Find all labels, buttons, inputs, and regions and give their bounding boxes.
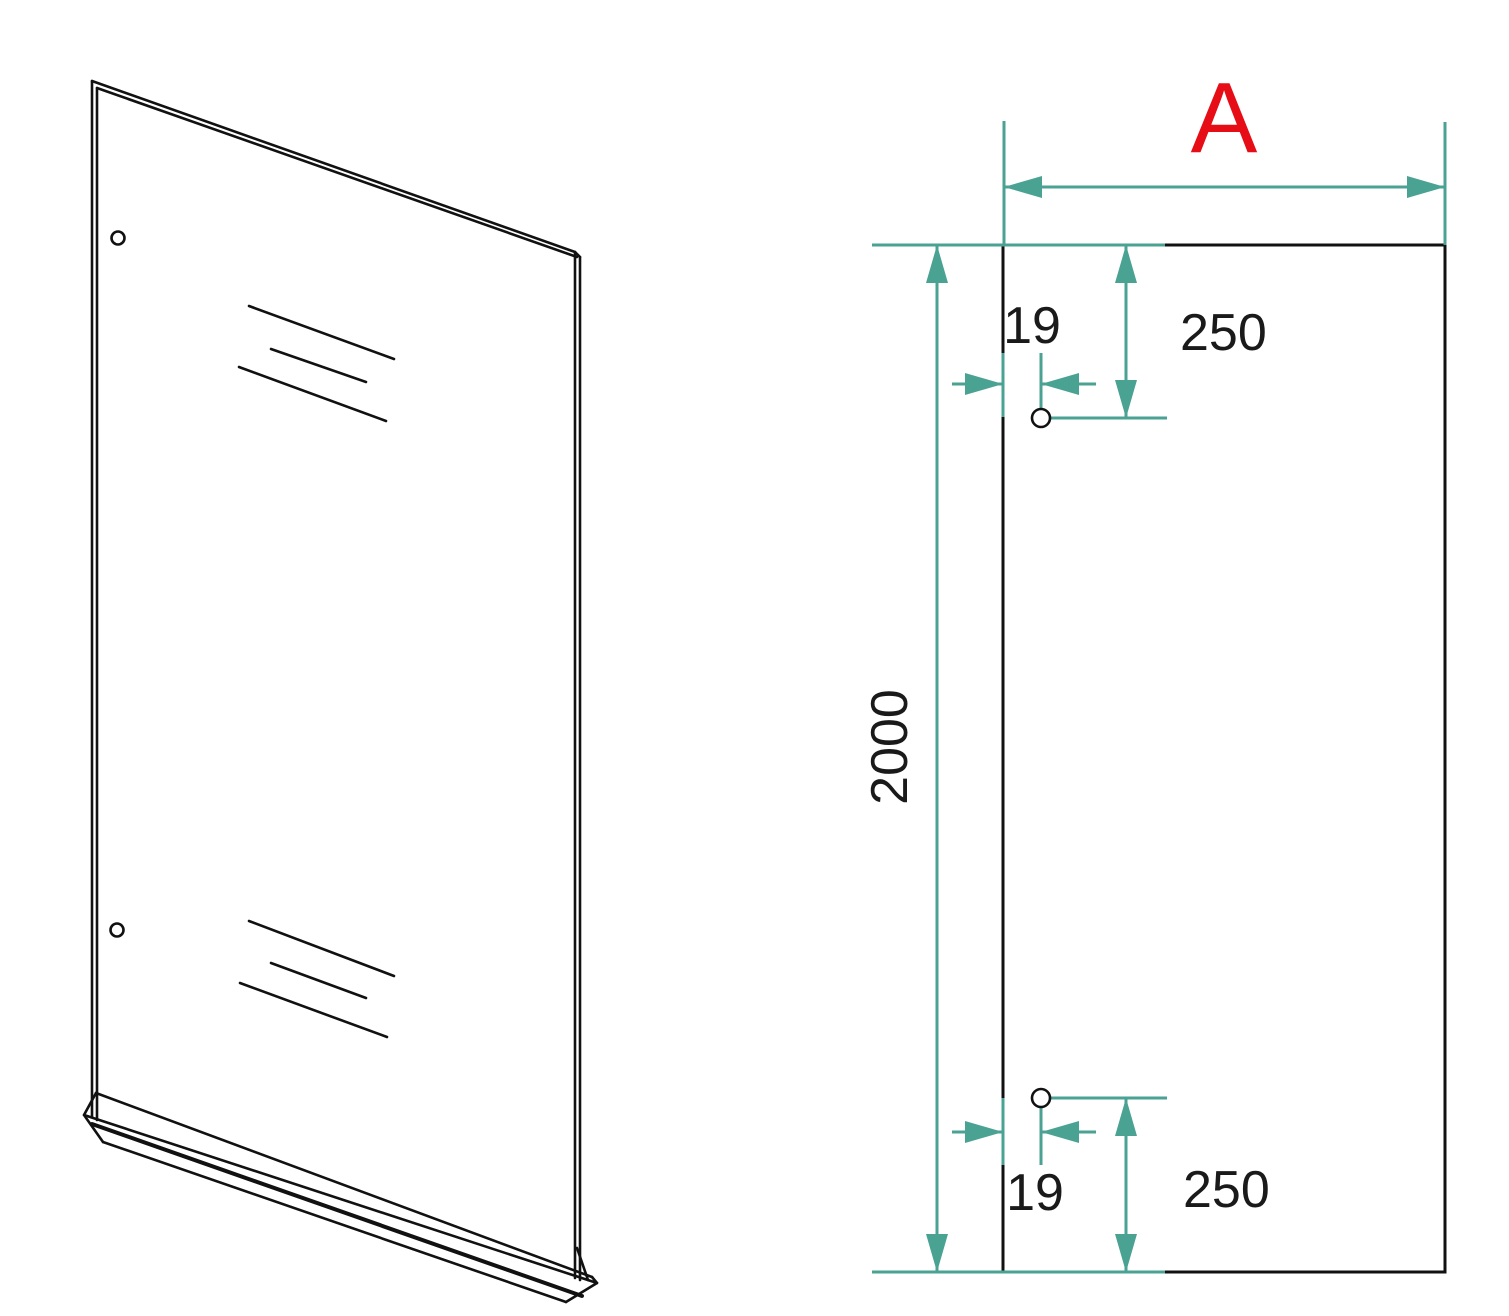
seal-bottom-edge [103, 1142, 566, 1302]
reflection-line [249, 921, 394, 976]
bottom-19-label: 19 [1006, 1164, 1064, 1222]
arrowhead-right [965, 373, 1003, 395]
arrowhead-up [926, 245, 948, 283]
reflection-line [271, 963, 366, 998]
top-250-label: 250 [1180, 304, 1267, 362]
top-19-label: 19 [1003, 297, 1061, 355]
arrowhead-left [1041, 1121, 1079, 1143]
arrowhead-down [926, 1234, 948, 1272]
reflection-line [239, 367, 386, 421]
hole-bottom-front [1032, 1089, 1050, 1107]
arrowhead-right [1407, 176, 1445, 198]
hole-bottom-perspective [111, 924, 124, 937]
perspective-view [84, 81, 597, 1302]
arrowhead-down [1115, 1234, 1137, 1272]
arrowhead-left [1041, 373, 1079, 395]
arrowhead-down [1115, 380, 1137, 418]
bottom-seal-profile [84, 1093, 597, 1302]
bottom-hole-dimensions: 250 19 [952, 1089, 1270, 1272]
height-label: 2000 [861, 689, 919, 805]
arrowhead-right [965, 1121, 1003, 1143]
height-dimension: 2000 [861, 245, 1165, 1272]
reflection-line [240, 983, 387, 1037]
seal-front-top-edge [84, 1115, 597, 1283]
arrowhead-up [1115, 245, 1137, 283]
technical-drawing-canvas: 2000 A 250 [0, 0, 1509, 1316]
front-view: 2000 A 250 [861, 62, 1445, 1272]
reflection-line [249, 306, 394, 359]
glass-top-edge-outer [92, 81, 575, 252]
width-label: A [1191, 62, 1258, 174]
bottom-250-label: 250 [1183, 1161, 1270, 1219]
seal-front-groove [92, 1124, 582, 1296]
arrowhead-up [1115, 1098, 1137, 1136]
reflection-line [271, 349, 366, 382]
hole-top-front [1032, 409, 1050, 427]
glass-top-edge-inner [97, 88, 577, 257]
glass-panel-dimension-drawing: 2000 A 250 [0, 0, 1509, 1316]
hole-top-perspective [112, 232, 125, 245]
width-dimension: A [1004, 62, 1445, 245]
arrowhead-left [1004, 176, 1042, 198]
seal-right-foot-line [577, 1248, 588, 1280]
seal-top-edge [96, 1093, 592, 1277]
top-hole-dimensions: 250 19 [952, 245, 1267, 427]
panel-outline [1003, 245, 1445, 1272]
